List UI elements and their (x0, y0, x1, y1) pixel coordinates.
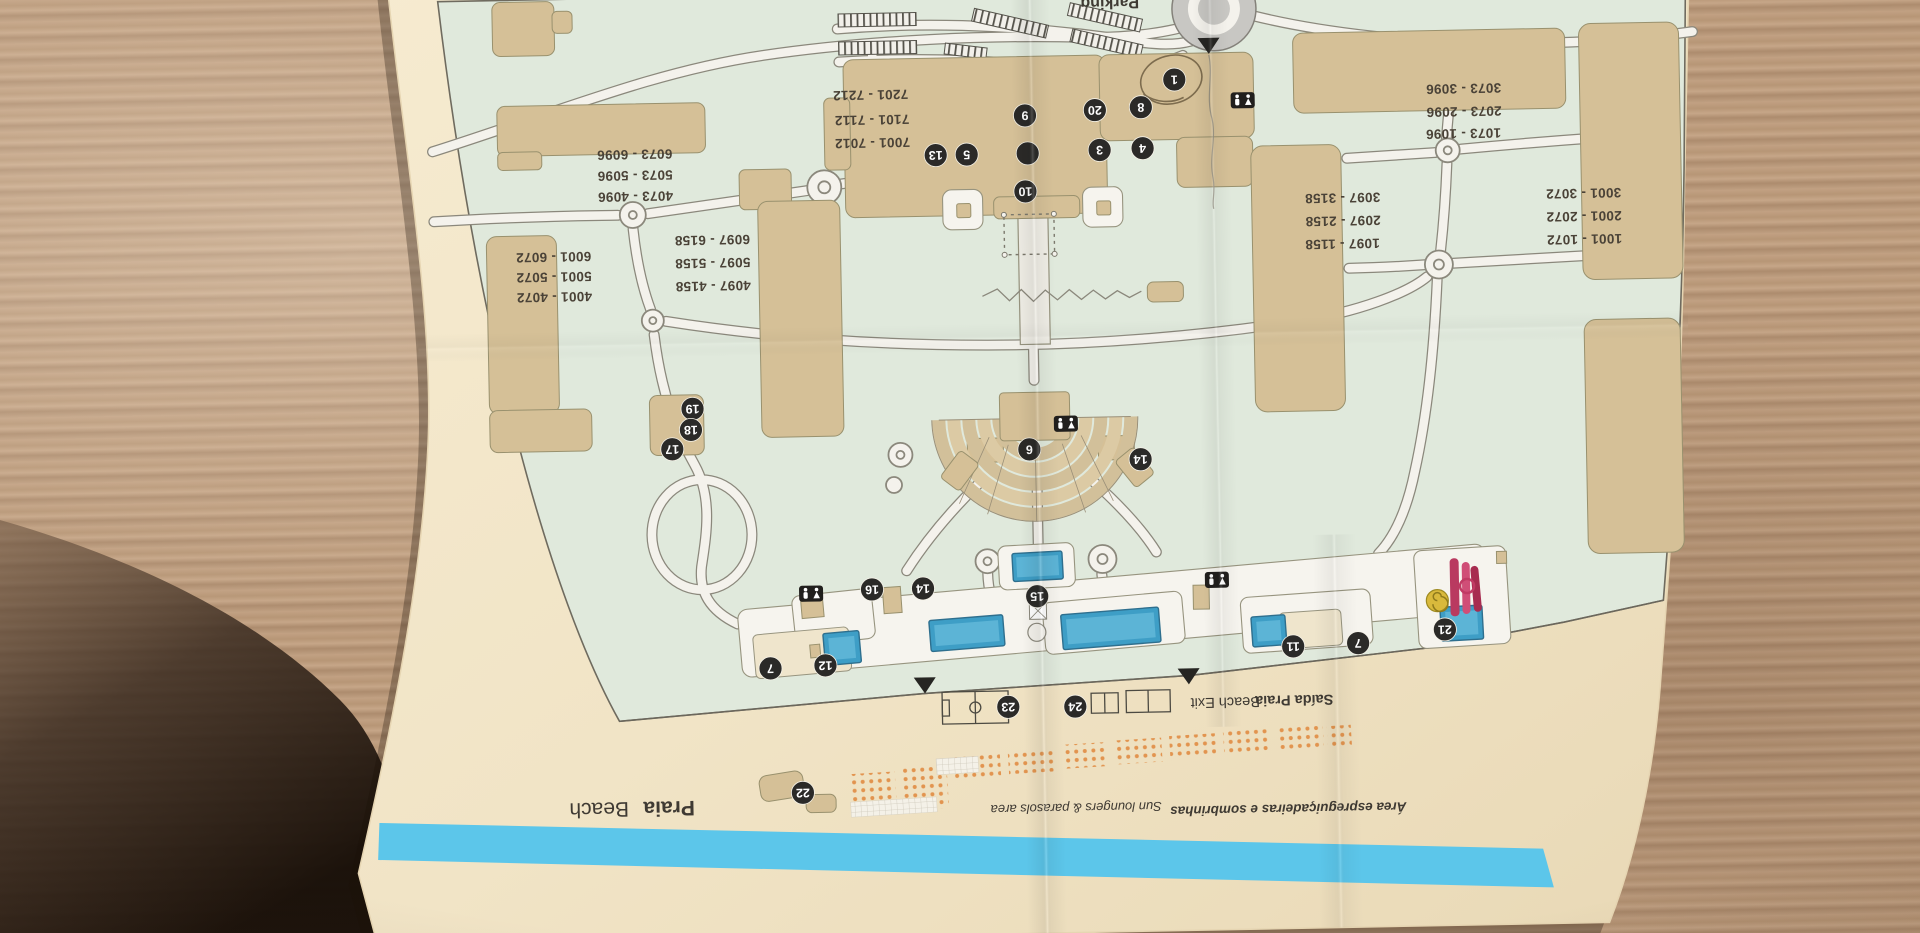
building-east-mid (1251, 144, 1346, 412)
room-range-label: 3001 - 3072 (1546, 185, 1622, 201)
room-range-label: 7101 - 7112 (835, 112, 910, 128)
marker-1: 1 (1171, 72, 1178, 86)
building-west-mid (758, 200, 845, 438)
room-range-label: 4073 - 4096 (597, 188, 673, 204)
marker-16: 16 (865, 582, 879, 596)
room-range-label: 3073 - 3096 (1426, 80, 1502, 96)
marker-12: 12 (818, 658, 832, 672)
marker-13: 13 (929, 148, 943, 162)
beach-label: Beach (569, 797, 629, 821)
marker-11: 11 (1286, 639, 1300, 653)
marker-3: 3 (1096, 143, 1103, 157)
room-range-label: 6001 - 6072 (516, 249, 592, 265)
marker-5: 5 (963, 147, 970, 161)
marker-14: 14 (1133, 452, 1147, 466)
room-range-label: 4001 - 4072 (517, 289, 593, 305)
room-range-label: 3097 - 3158 (1305, 190, 1381, 206)
marker-18: 18 (684, 423, 698, 437)
room-range-label: 7001 - 7012 (835, 135, 911, 151)
marker-20: 20 (1088, 103, 1102, 117)
resort-map-photo: 7201 - 7212 7101 - 7112 7001 - 7012 6073… (0, 0, 1920, 933)
marker-14b: 14 (916, 581, 930, 595)
room-range-label: 5073 - 5096 (597, 167, 673, 183)
room-range-label: 2097 - 2158 (1305, 213, 1381, 229)
building-northwest (492, 1, 555, 56)
room-range-label: 1073 - 1096 (1425, 125, 1501, 141)
room-range-label: 5097 - 5158 (675, 255, 751, 271)
marker-7: 7 (767, 661, 774, 675)
room-range-label: 4097 - 4158 (675, 278, 751, 294)
room-range-label: 6073 - 6096 (597, 146, 673, 162)
building-east-edge-south (1584, 318, 1684, 554)
room-range-label: 7201 - 7212 (833, 87, 909, 103)
marker-23: 23 (1001, 700, 1015, 714)
marker-24: 24 (1068, 699, 1082, 713)
table-shadow-corner (0, 520, 412, 933)
parking-label: Parking (1080, 0, 1139, 11)
room-range-label: 6097 - 6158 (674, 232, 750, 248)
marker-4: 4 (1139, 141, 1146, 155)
marker-17: 17 (665, 442, 679, 456)
marker-19: 19 (685, 402, 699, 416)
room-range-label: 5001 - 5072 (516, 269, 592, 285)
room-range-label: 2001 - 2072 (1546, 208, 1622, 224)
building-east-upper (1292, 28, 1565, 113)
room-range-label: 1097 - 1158 (1305, 236, 1380, 252)
room-range-label: 2073 - 2096 (1426, 103, 1502, 119)
room-range-label: 1001 - 1072 (1547, 231, 1623, 247)
praia-label: Praia (643, 796, 695, 820)
marker-8: 8 (1137, 100, 1144, 114)
marker-21: 21 (1438, 622, 1452, 636)
marker-22: 22 (796, 786, 810, 800)
